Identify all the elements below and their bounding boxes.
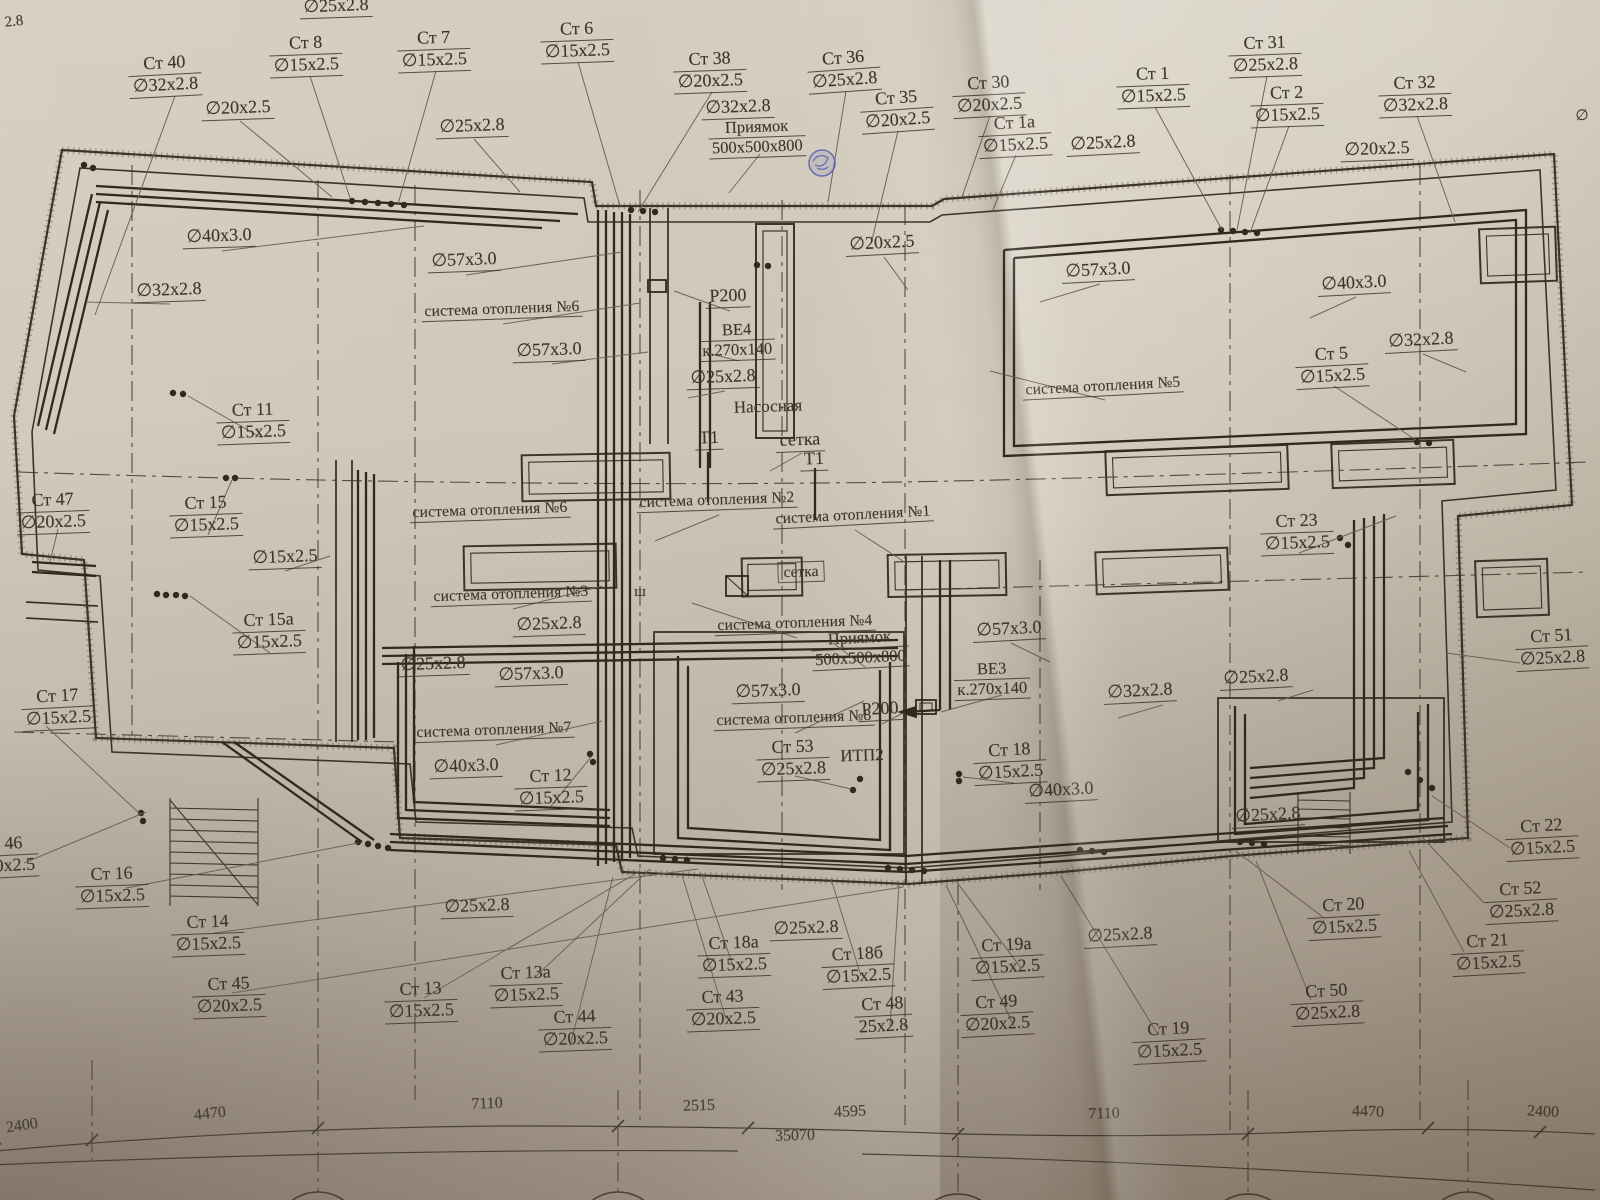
label-line: ∅25x2.8 — [769, 917, 843, 941]
riser-label: Ст 2∅15x2.5 — [1250, 82, 1325, 128]
label-line: ∅20x2.5 — [201, 97, 275, 121]
riser-label: Ст 15∅15x2.5 — [169, 492, 244, 538]
label-line: ∅25x2.8 — [440, 895, 514, 919]
pipe-size-label: ∅57x3.0 — [494, 663, 568, 687]
pipe-size-label: ∅25x2.8 — [686, 366, 760, 390]
pipe-size-label: ∅25x2.8 — [299, 0, 373, 19]
label-line: ∅25x2.8 — [435, 115, 509, 139]
photo-of-drawing: 2.8∅25x2.8Ст 40∅32x2.8Ст 8∅15x2.5Ст 7∅15… — [0, 0, 1600, 1200]
label-line: Р200 — [705, 285, 751, 308]
dimension-label: 7110 — [471, 1095, 503, 1114]
label-line: 4595 — [834, 1102, 867, 1121]
label-line: ∅20x2.5 — [16, 511, 90, 535]
label-line: ∅40x3.0 — [182, 225, 256, 249]
label-line: ∅20x2.5 — [845, 231, 919, 257]
pipe-size-label: ∅20x2.5 — [1340, 138, 1414, 162]
label-line: ∅15x2.5 — [21, 706, 95, 732]
riser-label: Ст 31∅25x2.8 — [1228, 32, 1303, 78]
pipe-size-label: ∅57x3.0 — [731, 680, 805, 704]
riser-label: Ст 44∅20x2.5 — [538, 1006, 613, 1052]
label-line: ∅15x2.5 — [821, 964, 895, 990]
label-line: ∅15x2.5 — [216, 421, 290, 445]
riser-label: Ст 32∅32x2.8 — [1378, 72, 1453, 118]
pipe-size-label: ∅40x3.0 — [182, 225, 256, 249]
riser-label: Ст 47∅20x2.5 — [16, 489, 91, 535]
riser-label: Ст 13а∅15x2.5 — [489, 962, 564, 1008]
pipe-size-label: ∅40x3.0 — [429, 755, 503, 779]
riser-label: Ст 6∅15x2.5 — [540, 18, 615, 64]
text-fragment: 2.8 — [4, 13, 24, 31]
label-line: 25х2.8 — [854, 1014, 913, 1039]
label-line: ∅20x2.5 — [686, 1008, 760, 1032]
label-line: ∅25x2.8 — [396, 653, 470, 677]
riser-label: Ст 7∅15x2.5 — [397, 27, 472, 73]
label-line: ∅15x2.5 — [384, 1000, 458, 1024]
pipe-size-label: ∅15x2.5 — [248, 546, 322, 570]
pipe-size-label: Р200 — [705, 285, 751, 308]
label-line: ∅15x2.5 — [232, 631, 306, 655]
dimension-label: 4595 — [834, 1102, 867, 1121]
label-line: Насосная — [734, 396, 803, 417]
riser-label: Ст 4825х2.8 — [853, 993, 913, 1040]
label-line: ∅57x3.0 — [731, 680, 805, 704]
riser-label: Ст 38∅20x2.5 — [673, 48, 748, 94]
riser-label: Ст 46∅20x2.5 — [0, 832, 40, 879]
dimension-label: 4470 — [193, 1104, 227, 1125]
label-line: ∅20x2.5 — [192, 995, 266, 1019]
label-line: ∅40x3.0 — [1317, 271, 1391, 297]
label-line: ∅25x2.8 — [1066, 131, 1140, 157]
equipment-label: Приямок500х500х800 — [811, 626, 910, 671]
equipment-label: ВЕ4к.270х140 — [698, 320, 775, 363]
label-line: ∅32x2.8 — [128, 73, 202, 99]
riser-label: Ст 16∅15x2.5 — [75, 863, 150, 909]
text-fragment: ш — [634, 584, 646, 601]
label-line: 7110 — [471, 1095, 503, 1114]
riser-label: Ст 18б∅15x2.5 — [820, 942, 895, 989]
pipe-size-label: ∅20x2.5 — [201, 97, 275, 121]
label-line: ∅57x3.0 — [427, 249, 501, 273]
riser-label: Ст 13∅15x2.5 — [384, 978, 459, 1024]
label-line: ∅15x2.5 — [1250, 104, 1324, 128]
label-line: ИТП2 — [840, 746, 884, 766]
pipe-size-label: ∅25x2.8 — [396, 653, 470, 677]
label-line: 35070 — [775, 1127, 816, 1146]
netting-label: сетка — [777, 561, 825, 584]
label-line: к.270х140 — [699, 340, 776, 363]
label-line: Т1 — [800, 449, 829, 472]
label-line: 4470 — [193, 1104, 227, 1125]
riser-label: Ст 5∅15x2.5 — [1294, 342, 1369, 389]
label-line: ∅25x2.8 — [756, 758, 830, 782]
pipe-size-label: ∅32x2.8 — [1384, 328, 1458, 354]
label-line: ∅25x2.8 — [299, 0, 373, 19]
riser-label: Ст 43∅20x2.5 — [686, 986, 761, 1032]
blue-stamp — [809, 150, 835, 176]
pipe-size-label: ∅25x2.8 — [440, 895, 514, 919]
pipe-size-label: ∅57x3.0 — [427, 249, 501, 273]
label-line: ∅57x3.0 — [512, 339, 586, 363]
riser-label: Ст 17∅15x2.5 — [20, 684, 95, 731]
label-line: ∅15x2.5 — [1116, 85, 1190, 109]
label-line: Т1 — [695, 428, 724, 451]
label-line: ∅15x2.5 — [248, 546, 322, 570]
label-line: ∅15x2.5 — [489, 984, 563, 1008]
label-line: ∅15x2.5 — [697, 954, 771, 978]
label-line: 2.8 — [4, 13, 24, 31]
riser-label: Ст 15а∅15x2.5 — [232, 609, 307, 655]
label-line: сетка — [777, 561, 825, 584]
label-line: ш — [634, 584, 646, 601]
label-line: ∅32x2.8 — [132, 279, 206, 303]
label-line: ∅32x2.8 — [1378, 94, 1452, 118]
label-line: ∅25x2.8 — [1228, 54, 1302, 78]
pipe-size-label: Т1 — [800, 449, 829, 472]
text-fragment: ∅ — [1575, 108, 1588, 125]
room-label: Насосная — [734, 396, 803, 417]
label-line: ∅25x2.8 — [686, 366, 760, 390]
label-line: ∅15x2.5 — [169, 514, 243, 538]
pipe-size-label: ∅25x2.8 — [435, 115, 509, 139]
fold-shadow — [940, 520, 1600, 1200]
label-line: 2515 — [683, 1097, 716, 1116]
pipe-size-label: ∅20x2.5 — [845, 231, 919, 257]
dimension-label: 2515 — [683, 1097, 716, 1116]
label-line: ∅15x2.5 — [514, 787, 588, 811]
riser-label: Ст 8∅15x2.5 — [269, 32, 344, 78]
label-line: 500х500х800 — [709, 136, 806, 160]
riser-label: Ст 40∅32x2.8 — [127, 51, 202, 98]
dimension-label: 35070 — [775, 1127, 816, 1146]
label-line: ∅20x2.5 — [1340, 138, 1414, 162]
label-line: ∅15x2.5 — [397, 49, 471, 73]
pipe-size-label: ∅32x2.8 — [132, 279, 206, 303]
pipe-size-label: ∅57x3.0 — [512, 339, 586, 363]
label-line: ∅15x2.5 — [171, 933, 245, 957]
riser-label: Ст 12∅15x2.5 — [514, 765, 589, 811]
riser-label: Ст 45∅20x2.5 — [192, 973, 267, 1019]
label-line: ∅20x2.5 — [0, 854, 40, 880]
equipment-label: Приямок500х500х800 — [708, 116, 806, 160]
label-line: ∅20x2.5 — [673, 70, 747, 94]
pipe-size-label: ∅25x2.8 — [769, 917, 843, 941]
room-label: ИТП2 — [840, 746, 884, 766]
label-line: ∅15x2.5 — [75, 885, 149, 909]
riser-label: Ст 1∅15x2.5 — [1116, 63, 1191, 109]
label-line: ∅15x2.5 — [269, 54, 343, 78]
riser-label: Ст 14∅15x2.5 — [171, 911, 246, 957]
riser-label: Ст 53∅25x2.8 — [756, 736, 831, 782]
riser-label: Ст 36∅25x2.8 — [806, 46, 882, 95]
label-line: ∅57x3.0 — [494, 663, 568, 687]
riser-label: Ст 11∅15x2.5 — [216, 399, 291, 445]
pipe-size-label: ∅25x2.8 — [1066, 131, 1140, 157]
label-line: ∅15x2.5 — [1295, 364, 1369, 390]
label-line: ∅15x2.5 — [540, 40, 614, 64]
label-line: ∅ — [1575, 108, 1588, 125]
label-line: ∅20x2.5 — [538, 1028, 612, 1052]
label-line: ∅40x3.0 — [429, 755, 503, 779]
pipe-size-label: Т1 — [695, 428, 724, 451]
pipe-size-label: ∅40x3.0 — [1317, 271, 1391, 297]
label-line: ∅25x2.8 — [512, 613, 586, 637]
pipe-size-label: ∅25x2.8 — [512, 613, 586, 637]
label-line: ∅32x2.8 — [1384, 328, 1458, 354]
riser-label: Ст 18а∅15x2.5 — [697, 932, 772, 978]
